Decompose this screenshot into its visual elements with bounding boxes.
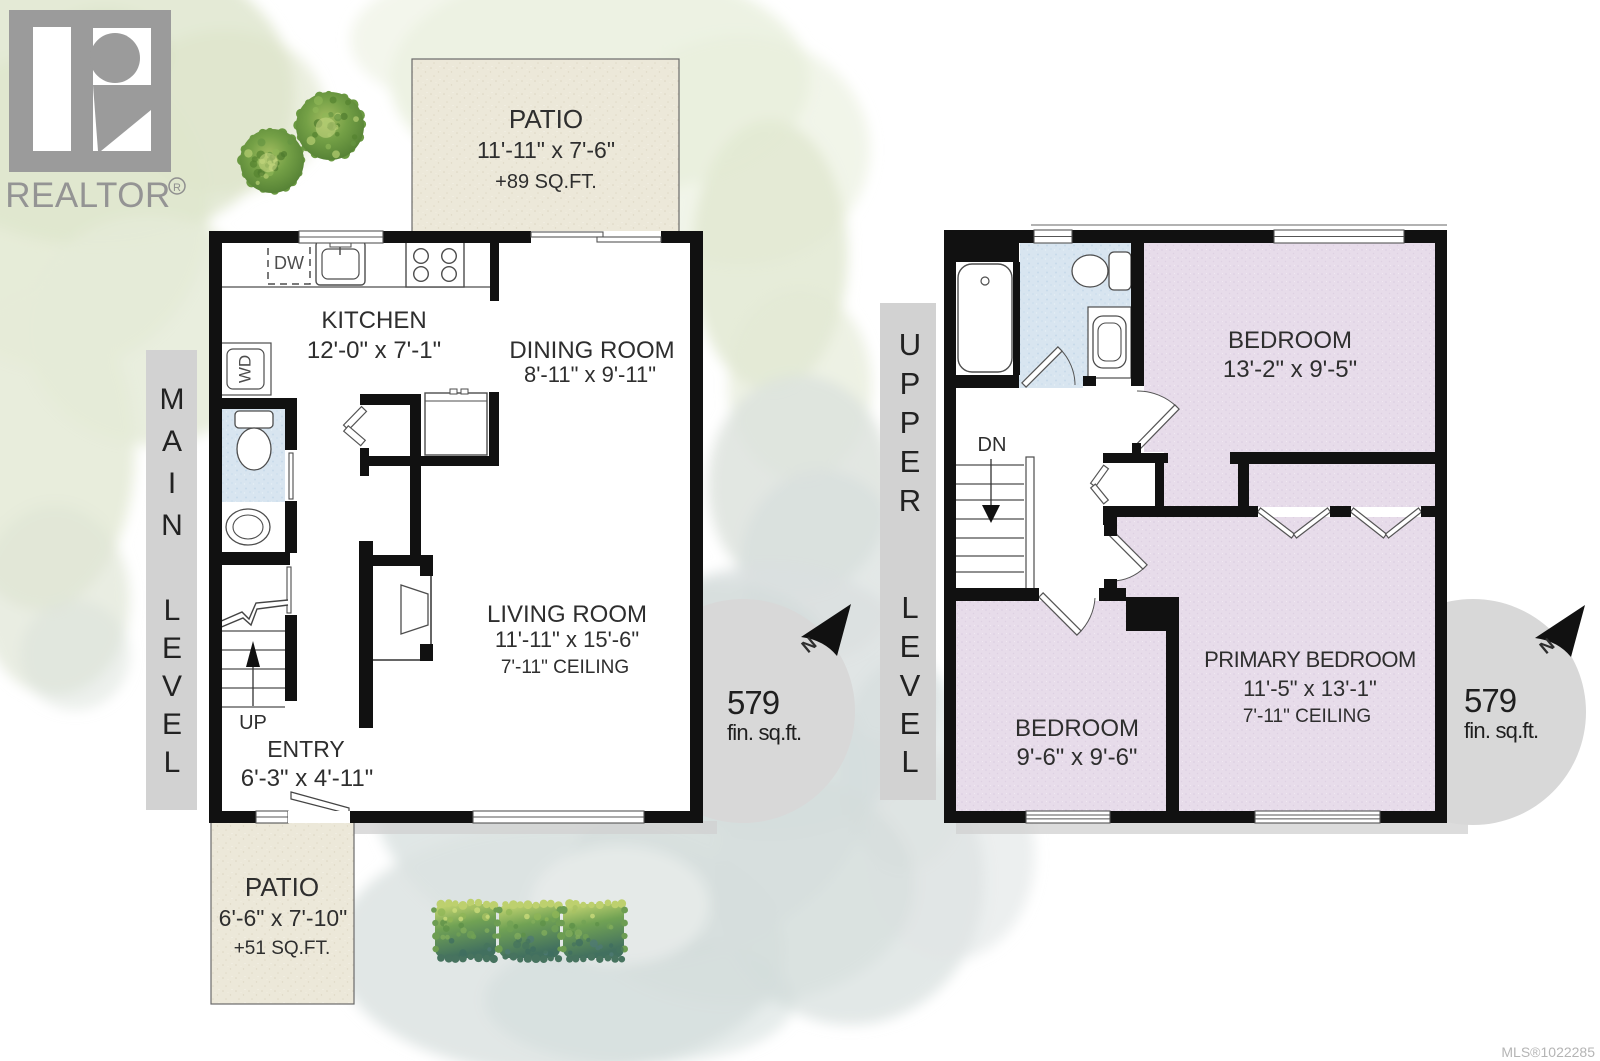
svg-text:L: L — [164, 746, 181, 779]
svg-text:R: R — [173, 182, 181, 194]
svg-text:M: M — [160, 383, 185, 416]
svg-text:BEDROOM: BEDROOM — [1228, 327, 1352, 354]
svg-text:11'-11" x 15'-6": 11'-11" x 15'-6" — [495, 627, 639, 652]
svg-text:UP: UP — [239, 712, 267, 734]
svg-text:13'-2" x 9'-5": 13'-2" x 9'-5" — [1223, 356, 1357, 383]
svg-text:E: E — [900, 444, 921, 479]
svg-text:9'-6" x 9'-6": 9'-6" x 9'-6" — [1017, 744, 1138, 771]
svg-text:PATIO: PATIO — [509, 104, 583, 134]
svg-text:A: A — [162, 425, 182, 458]
svg-text:PRIMARY BEDROOM: PRIMARY BEDROOM — [1204, 647, 1416, 672]
svg-text:V: V — [162, 670, 182, 703]
svg-text:fin. sq.ft.: fin. sq.ft. — [1464, 718, 1538, 743]
svg-text:N: N — [161, 509, 183, 542]
svg-text:MLS®1022285: MLS®1022285 — [1501, 1044, 1595, 1060]
svg-text:E: E — [900, 706, 921, 741]
svg-text:KITCHEN: KITCHEN — [321, 307, 426, 334]
svg-text:L: L — [164, 594, 181, 627]
svg-text:6'-6" x 7'-10": 6'-6" x 7'-10" — [219, 905, 348, 931]
svg-text:DINING ROOM: DINING ROOM — [509, 337, 674, 364]
svg-text:579: 579 — [1464, 682, 1516, 719]
svg-text:E: E — [162, 632, 182, 665]
svg-text:+89 SQ.FT.: +89 SQ.FT. — [495, 171, 597, 193]
svg-text:7'-11" CEILING: 7'-11" CEILING — [501, 657, 629, 678]
svg-text:U: U — [899, 327, 921, 362]
svg-text:WD: WD — [236, 355, 255, 383]
svg-text:DW: DW — [274, 253, 304, 273]
svg-text:+51 SQ.FT.: +51 SQ.FT. — [234, 938, 331, 959]
svg-text:R: R — [899, 483, 921, 518]
svg-text:P: P — [900, 405, 921, 440]
svg-text:11'-11" x 7'-6": 11'-11" x 7'-6" — [477, 137, 615, 163]
svg-text:ENTRY: ENTRY — [267, 736, 345, 762]
svg-text:V: V — [900, 668, 921, 703]
svg-text:L: L — [901, 744, 918, 779]
svg-text:BEDROOM: BEDROOM — [1015, 715, 1139, 742]
svg-text:I: I — [168, 467, 176, 500]
svg-text:579: 579 — [727, 684, 779, 721]
svg-text:E: E — [900, 629, 921, 664]
svg-text:LIVING ROOM: LIVING ROOM — [487, 601, 647, 628]
svg-text:L: L — [901, 590, 918, 625]
svg-text:12'-0" x 7'-1": 12'-0" x 7'-1" — [307, 337, 441, 364]
svg-text:fin. sq.ft.: fin. sq.ft. — [727, 720, 801, 745]
svg-text:11'-5" x 13'-1": 11'-5" x 13'-1" — [1243, 676, 1377, 701]
svg-text:E: E — [162, 708, 182, 741]
svg-text:6'-3" x 4'-11": 6'-3" x 4'-11" — [241, 765, 373, 792]
svg-text:P: P — [900, 366, 921, 401]
svg-text:7'-11" CEILING: 7'-11" CEILING — [1243, 706, 1371, 727]
svg-text:PATIO: PATIO — [245, 872, 319, 902]
svg-text:DN: DN — [978, 434, 1007, 456]
svg-text:8'-11" x 9'-11": 8'-11" x 9'-11" — [524, 362, 656, 387]
svg-text:REALTOR: REALTOR — [5, 176, 171, 215]
